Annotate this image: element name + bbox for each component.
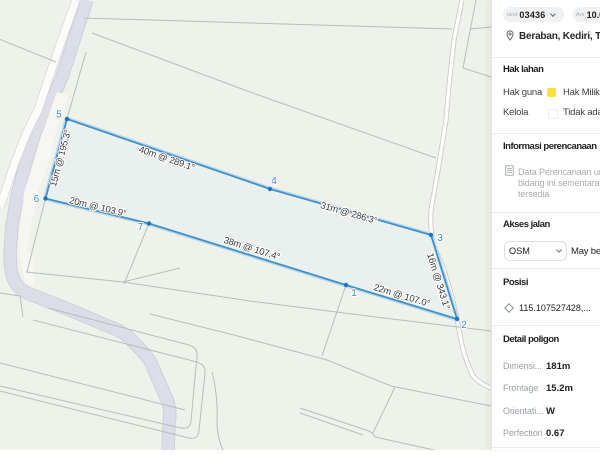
svg-text:4: 4: [271, 176, 277, 187]
svg-text:2: 2: [461, 320, 467, 331]
svg-text:5: 5: [56, 110, 62, 121]
svg-text:3: 3: [437, 233, 443, 244]
svg-text:6: 6: [34, 194, 40, 205]
svg-text:1: 1: [351, 288, 357, 299]
svg-text:7: 7: [138, 222, 144, 233]
